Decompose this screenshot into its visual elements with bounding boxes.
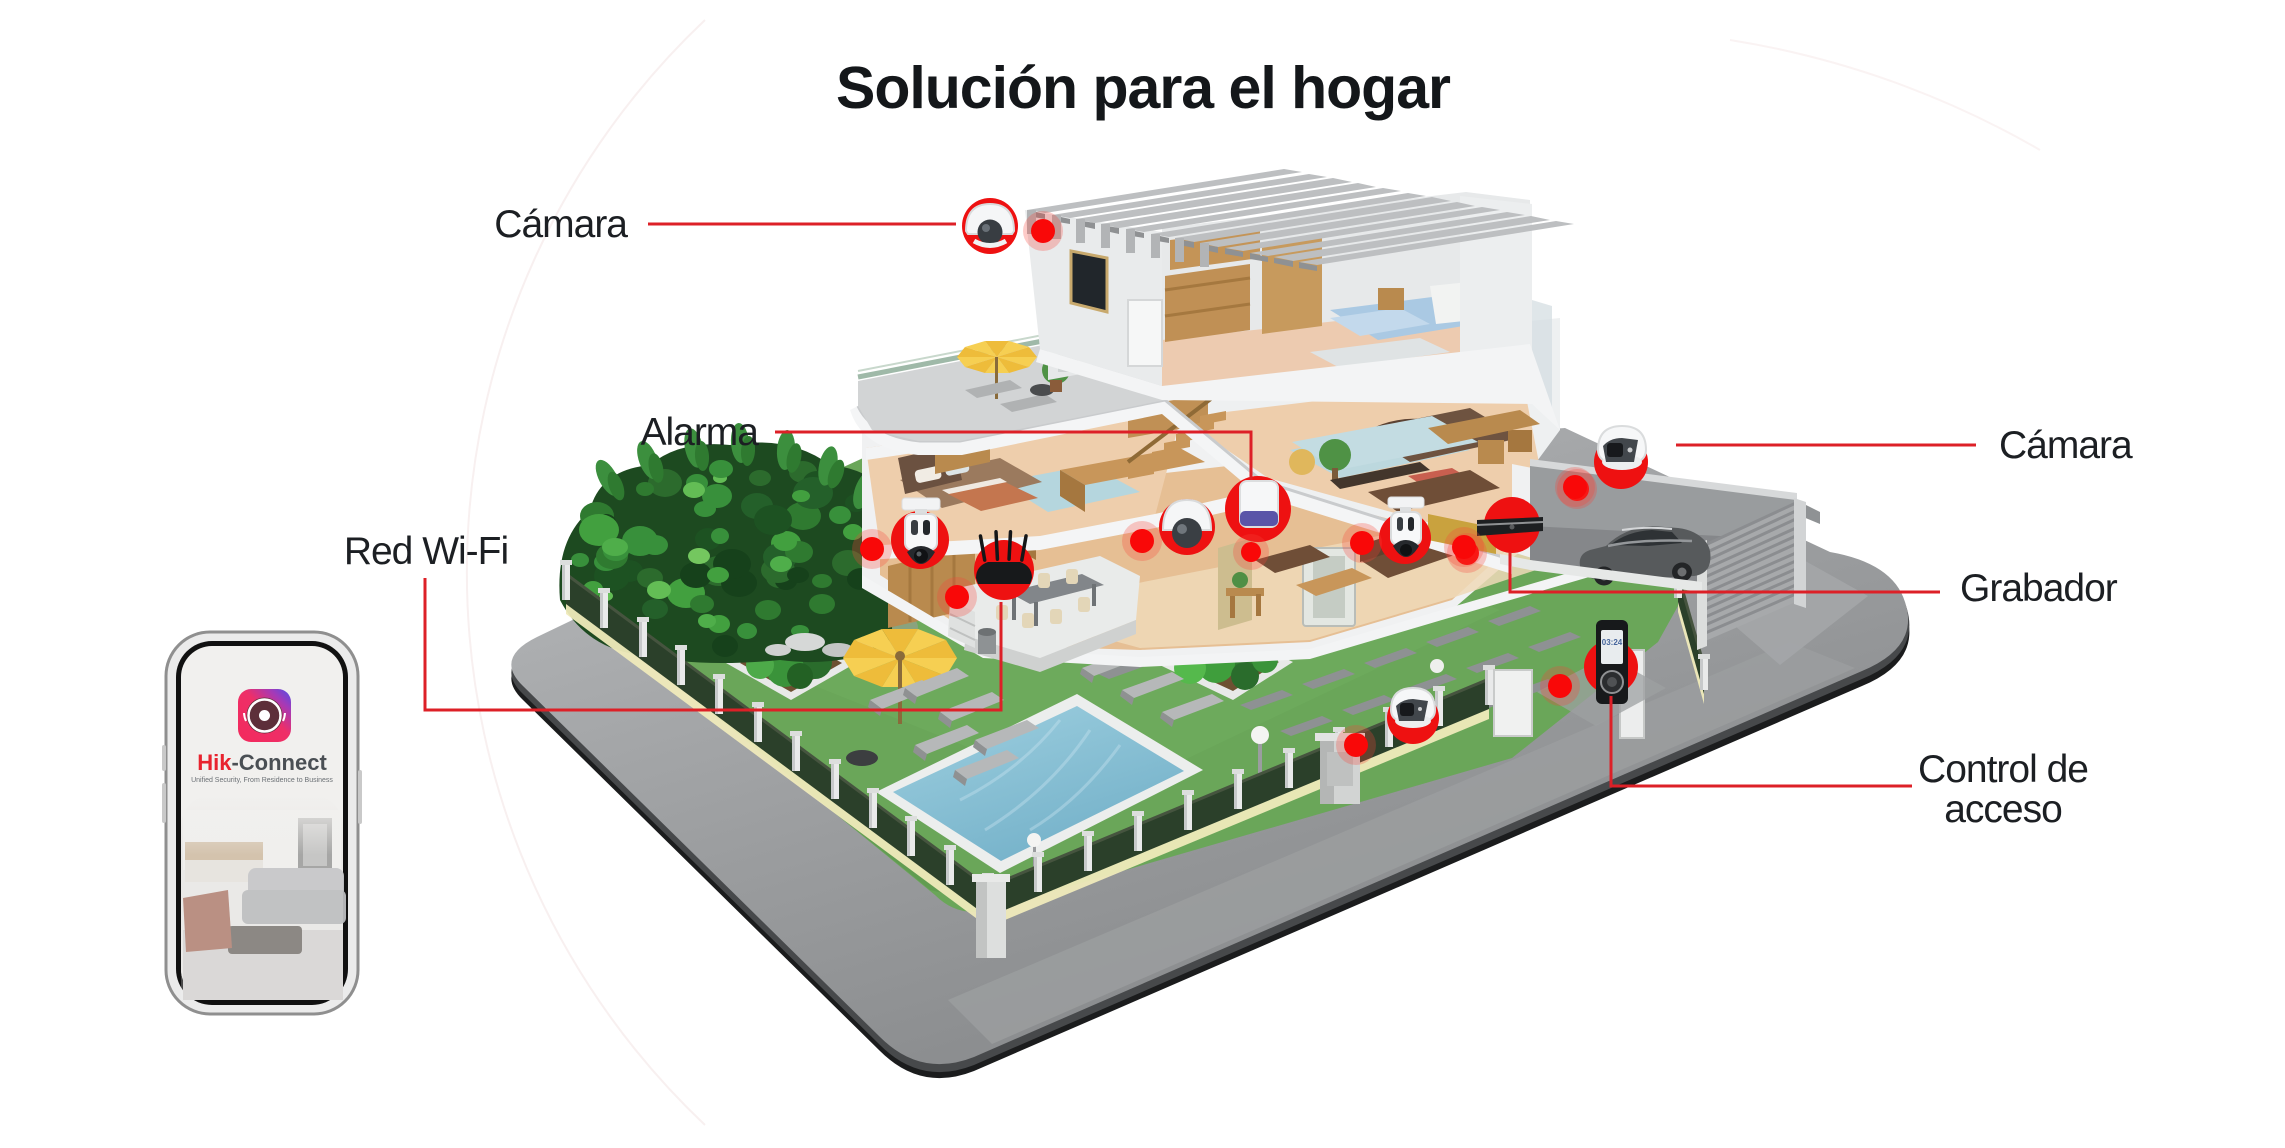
svg-text:03:24: 03:24 bbox=[1602, 638, 1623, 647]
svg-text:Hik-Connect: Hik-Connect bbox=[197, 750, 327, 775]
svg-text:acceso: acceso bbox=[1944, 788, 2062, 831]
svg-text:Cámara: Cámara bbox=[494, 203, 628, 246]
svg-text:Red Wi-Fi: Red Wi-Fi bbox=[344, 530, 508, 573]
svg-text:Solución para el hogar: Solución para el hogar bbox=[836, 55, 1451, 121]
svg-text:Cámara: Cámara bbox=[1999, 424, 2133, 467]
svg-text:Control de: Control de bbox=[1918, 748, 2088, 791]
svg-text:Grabador: Grabador bbox=[1960, 567, 2118, 610]
svg-text:Unified Security, From Residen: Unified Security, From Residence to Busi… bbox=[191, 777, 333, 784]
svg-text:Alarma: Alarma bbox=[640, 411, 759, 454]
